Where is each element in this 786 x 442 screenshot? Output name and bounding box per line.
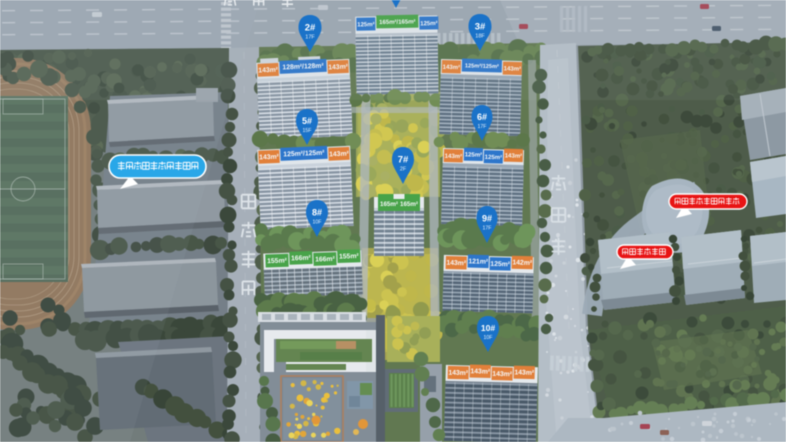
svg-text:8#: 8# [312,208,322,218]
svg-text:17F: 17F [478,124,487,130]
svg-text:10#: 10# [481,323,496,333]
svg-text:2#: 2# [305,23,316,34]
svg-text:2F: 2F [400,167,407,173]
svg-text:10F: 10F [484,335,493,341]
svg-text:10F: 10F [313,220,322,226]
svg-text:6#: 6# [477,112,487,122]
svg-text:7#: 7# [398,155,409,166]
svg-text:15F: 15F [303,128,312,134]
svg-text:3#: 3# [475,22,486,33]
svg-text:17F: 17F [483,226,492,232]
svg-text:9#: 9# [482,214,492,224]
svg-text:18F: 18F [475,34,485,40]
svg-text:17F: 17F [305,35,315,41]
svg-text:5#: 5# [302,116,312,126]
